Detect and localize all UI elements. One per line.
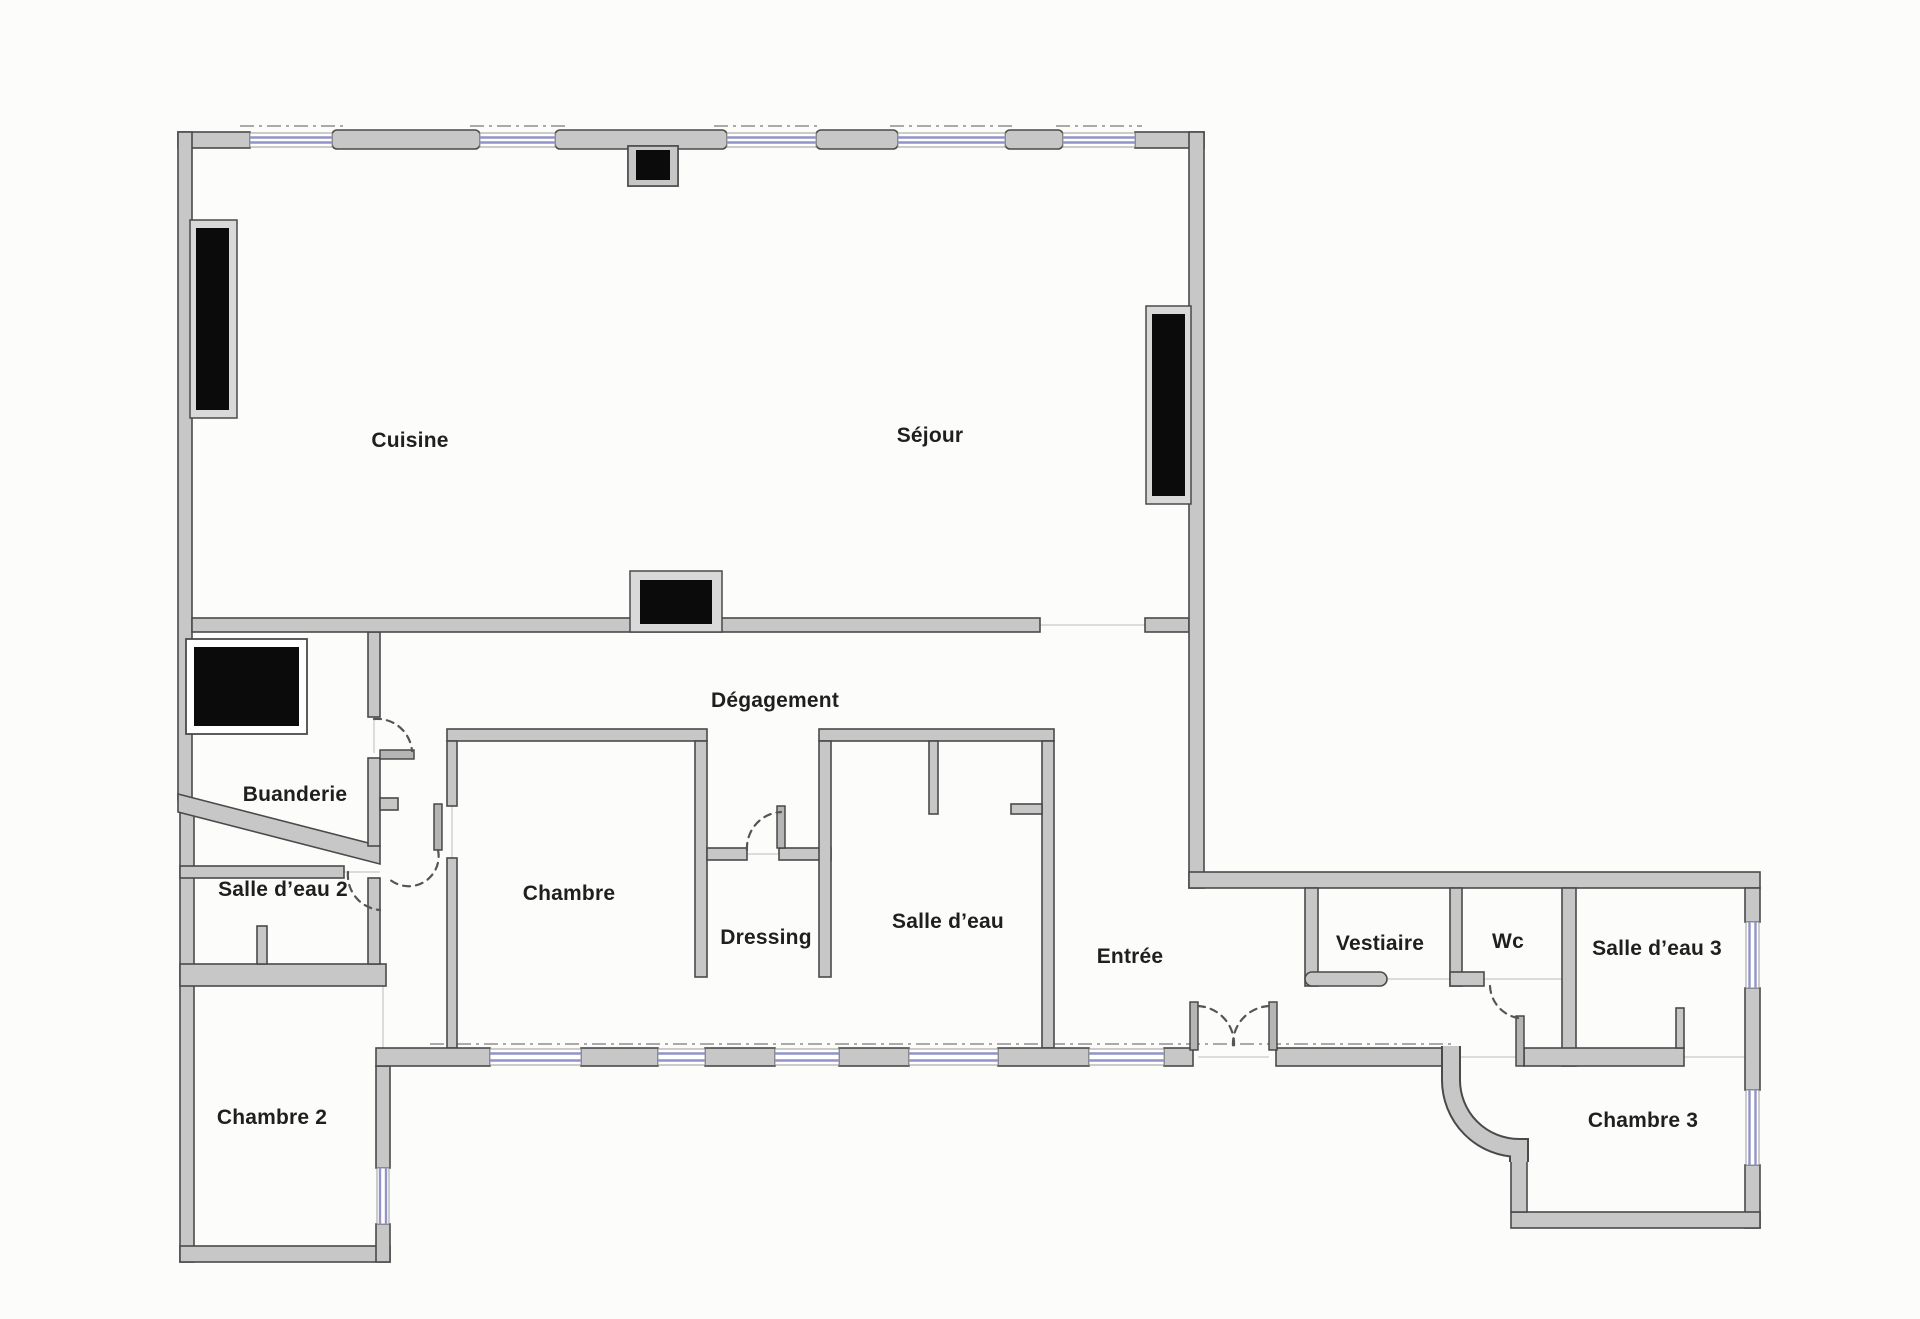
chimney-flue [636,150,670,180]
window [1746,1090,1759,1165]
room-label-sejour: Séjour [897,424,964,447]
floorplan-svg: Cuisine Séjour Dégagement Buanderie Sall… [0,0,1920,1319]
wall-tick [257,926,267,964]
wall-segment [707,848,747,860]
wall-segment [1450,972,1484,986]
room-label-salle-deau-3: Salle d’eau 3 [1592,937,1722,960]
wall-segment [1745,888,1760,922]
wall-segment [819,729,1054,741]
wall-segment [1562,888,1576,1066]
window [658,1049,705,1065]
wall-tick [1011,804,1042,814]
wall-segment [180,812,194,1262]
room-label-wc: Wc [1492,930,1524,953]
wall-segment [1276,1048,1451,1066]
wall-segment [1189,872,1760,888]
room-label-entree: Entrée [1097,945,1164,968]
flue-block [640,580,712,624]
room-label-salle-deau-2: Salle d’eau 2 [218,878,348,901]
door-swing-arc [747,812,781,850]
window [480,133,555,147]
wall-tick [1676,1008,1684,1048]
door-leaf [380,750,414,759]
wall-segment [581,1048,658,1066]
wall-segment [1164,1048,1193,1066]
wall-segment [819,741,831,977]
room-label-buanderie: Buanderie [243,783,348,806]
walls-layer [178,130,1760,1262]
wall-segment [376,1224,390,1262]
window [1089,1049,1164,1065]
wall-segment [1524,1048,1684,1066]
wall-segment [332,130,480,149]
door-leaf [1516,1016,1524,1066]
wall-segment [998,1048,1089,1066]
room-label-chambre-2: Chambre 2 [217,1106,327,1129]
wall-segment [1305,972,1387,986]
wall-tick [929,741,938,814]
wall-segment [705,1048,775,1066]
window [775,1049,839,1065]
wall-segment [368,878,380,964]
window [1063,133,1135,147]
door-leaf [1269,1002,1277,1050]
radiator-kitchen [196,228,229,410]
wall-segment [192,618,1040,632]
curved-wall [1451,1046,1519,1162]
window [377,1168,389,1224]
wall-segment [180,964,386,986]
door-leaf [1190,1002,1198,1050]
wall-segment [1145,618,1189,632]
door-swing-arc [388,850,439,886]
wall-segment [695,741,707,977]
wall-segment [368,632,380,717]
radiator-sejour [1152,314,1185,496]
room-label-vestiaire: Vestiaire [1336,932,1424,955]
wall-segment [447,729,707,741]
wall-segment [1042,741,1054,1048]
room-label-salle-deau: Salle d’eau [892,910,1004,933]
door-swing-arc [1198,1006,1234,1046]
radiators-layer [186,146,1191,734]
door-swing-arc [1233,1006,1269,1046]
wall-segment [368,758,380,846]
floorplan-sheet: Cuisine Séjour Dégagement Buanderie Sall… [0,0,1920,1319]
door-swing-arc [1490,986,1518,1018]
window [727,133,816,147]
wall-segment [376,1048,490,1066]
washing-machine [194,647,299,726]
window [1746,922,1759,988]
room-label-chambre-3: Chambre 3 [1588,1109,1698,1132]
room-label-chambre: Chambre [523,882,615,905]
wall-segment [1511,1155,1527,1212]
room-label-degagement: Dégagement [711,689,839,712]
wall-segment [816,130,898,149]
wall-segment [380,798,398,810]
door-leaf [434,804,442,850]
wall-segment [1005,130,1063,149]
window [909,1049,998,1065]
wall-segment [447,741,457,806]
room-label-cuisine: Cuisine [371,429,448,452]
wall-segment [180,866,344,878]
wall-segment [1745,988,1760,1090]
wall-segment [376,1066,390,1168]
window [898,133,1005,147]
wall-segment [447,858,457,1048]
door-swing-arc [374,719,412,751]
room-label-dressing: Dressing [720,926,811,949]
wall-segment [1189,132,1204,888]
wall-segment [1511,1212,1760,1228]
labels-layer: Cuisine Séjour Dégagement Buanderie Sall… [217,424,1722,1132]
window [490,1049,581,1065]
wall-segment [180,1246,390,1262]
wall-segment [839,1048,909,1066]
window [250,133,332,147]
